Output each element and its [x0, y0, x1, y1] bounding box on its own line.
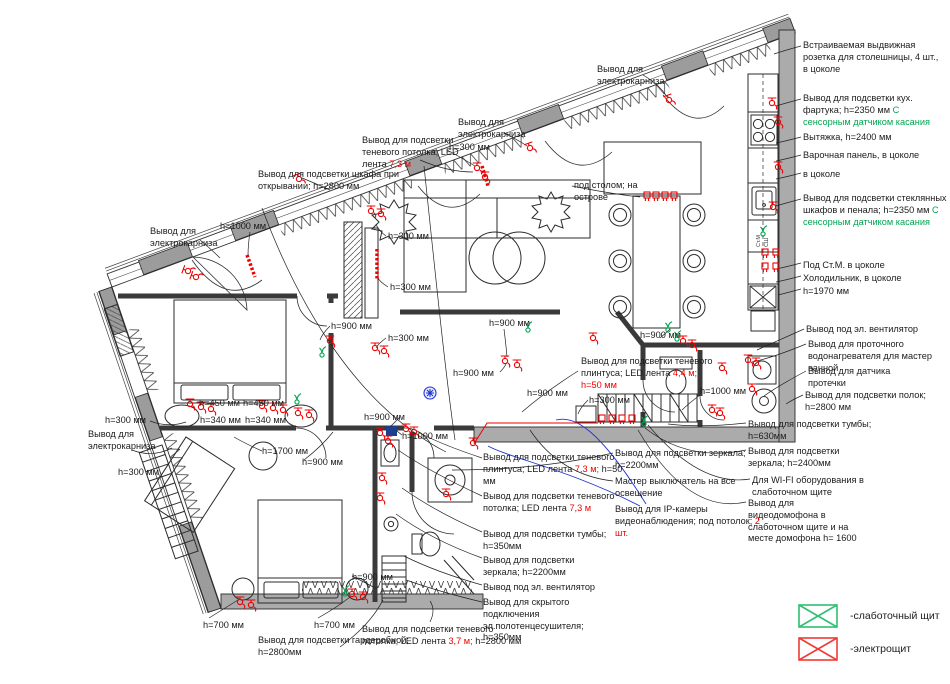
sink-cabinet	[748, 356, 776, 384]
east-wall	[779, 30, 795, 442]
cabinet-x	[750, 286, 776, 308]
floor-plan-drawing: Ст.М СШ	[0, 0, 950, 684]
walls	[94, 14, 799, 614]
electric-panel-icon	[798, 637, 838, 661]
floor-plan-page: Ст.М СШ	[0, 0, 950, 684]
toilet	[412, 532, 440, 556]
low-current-panel-icon	[798, 604, 838, 628]
cabinet-label: СШ	[764, 238, 770, 247]
interior-walls	[118, 296, 779, 602]
hall-closet	[576, 394, 697, 422]
washing-machine	[428, 458, 472, 502]
sink	[752, 187, 776, 215]
cabinet-label: Ст.М	[756, 235, 762, 247]
coffee-table	[469, 232, 521, 284]
legend: -слаботочный щит -электрощит	[798, 604, 940, 661]
cabinet	[751, 311, 775, 331]
legend-label: -слаботочный щит	[850, 610, 940, 622]
floor-drain	[384, 517, 398, 531]
toilet	[660, 357, 692, 394]
plant	[372, 200, 416, 244]
legend-label: -электрощит	[850, 643, 911, 655]
console	[576, 406, 596, 422]
south-wall-right-wing	[474, 427, 795, 442]
dining-chairs	[609, 204, 705, 318]
coffee-table	[493, 232, 545, 284]
legend-item: -слаботочный щит	[798, 604, 940, 628]
north-facade-wall	[105, 14, 799, 298]
legend-item: -электрощит	[798, 637, 940, 661]
round-basin	[752, 389, 776, 413]
kitchen-island	[604, 142, 701, 194]
pouf	[249, 442, 277, 470]
nightstand	[165, 405, 199, 427]
bedroom1-bed	[174, 300, 286, 403]
dining-table	[633, 196, 680, 328]
insulation-hatch	[279, 43, 772, 236]
junction-symbol	[424, 387, 436, 399]
south-insulation	[302, 581, 472, 594]
junction-box	[386, 426, 397, 436]
hob	[751, 115, 777, 145]
bathroom1	[381, 426, 474, 602]
tv-unit	[344, 222, 362, 318]
